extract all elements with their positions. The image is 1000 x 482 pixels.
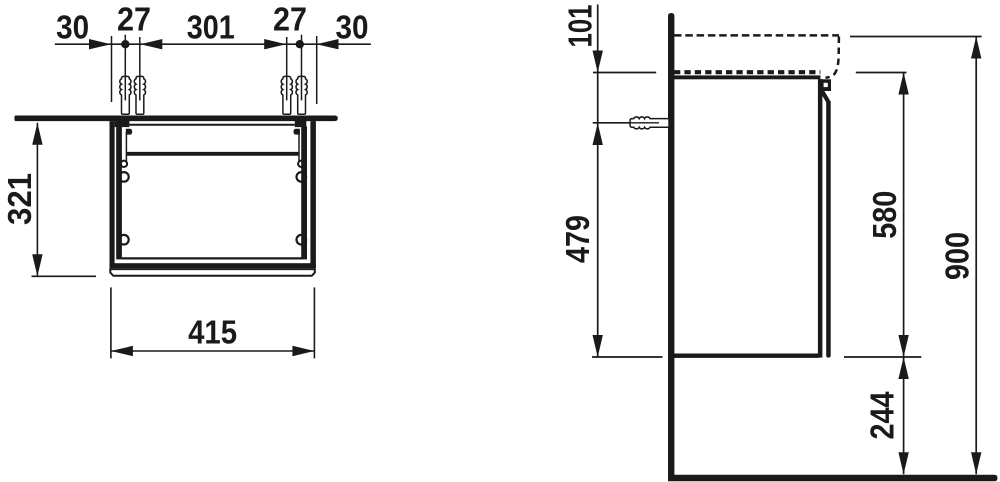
svg-text:27: 27 bbox=[117, 0, 151, 37]
svg-text:580: 580 bbox=[866, 191, 903, 239]
svg-text:244: 244 bbox=[864, 391, 901, 440]
svg-text:321: 321 bbox=[1, 173, 38, 225]
svg-text:301: 301 bbox=[187, 9, 235, 46]
svg-text:101: 101 bbox=[561, 5, 598, 48]
svg-text:27: 27 bbox=[273, 0, 307, 37]
svg-text:900: 900 bbox=[939, 232, 976, 280]
svg-text:479: 479 bbox=[559, 215, 596, 263]
svg-text:30: 30 bbox=[336, 9, 369, 46]
svg-text:415: 415 bbox=[188, 314, 237, 351]
svg-text:30: 30 bbox=[56, 9, 89, 46]
